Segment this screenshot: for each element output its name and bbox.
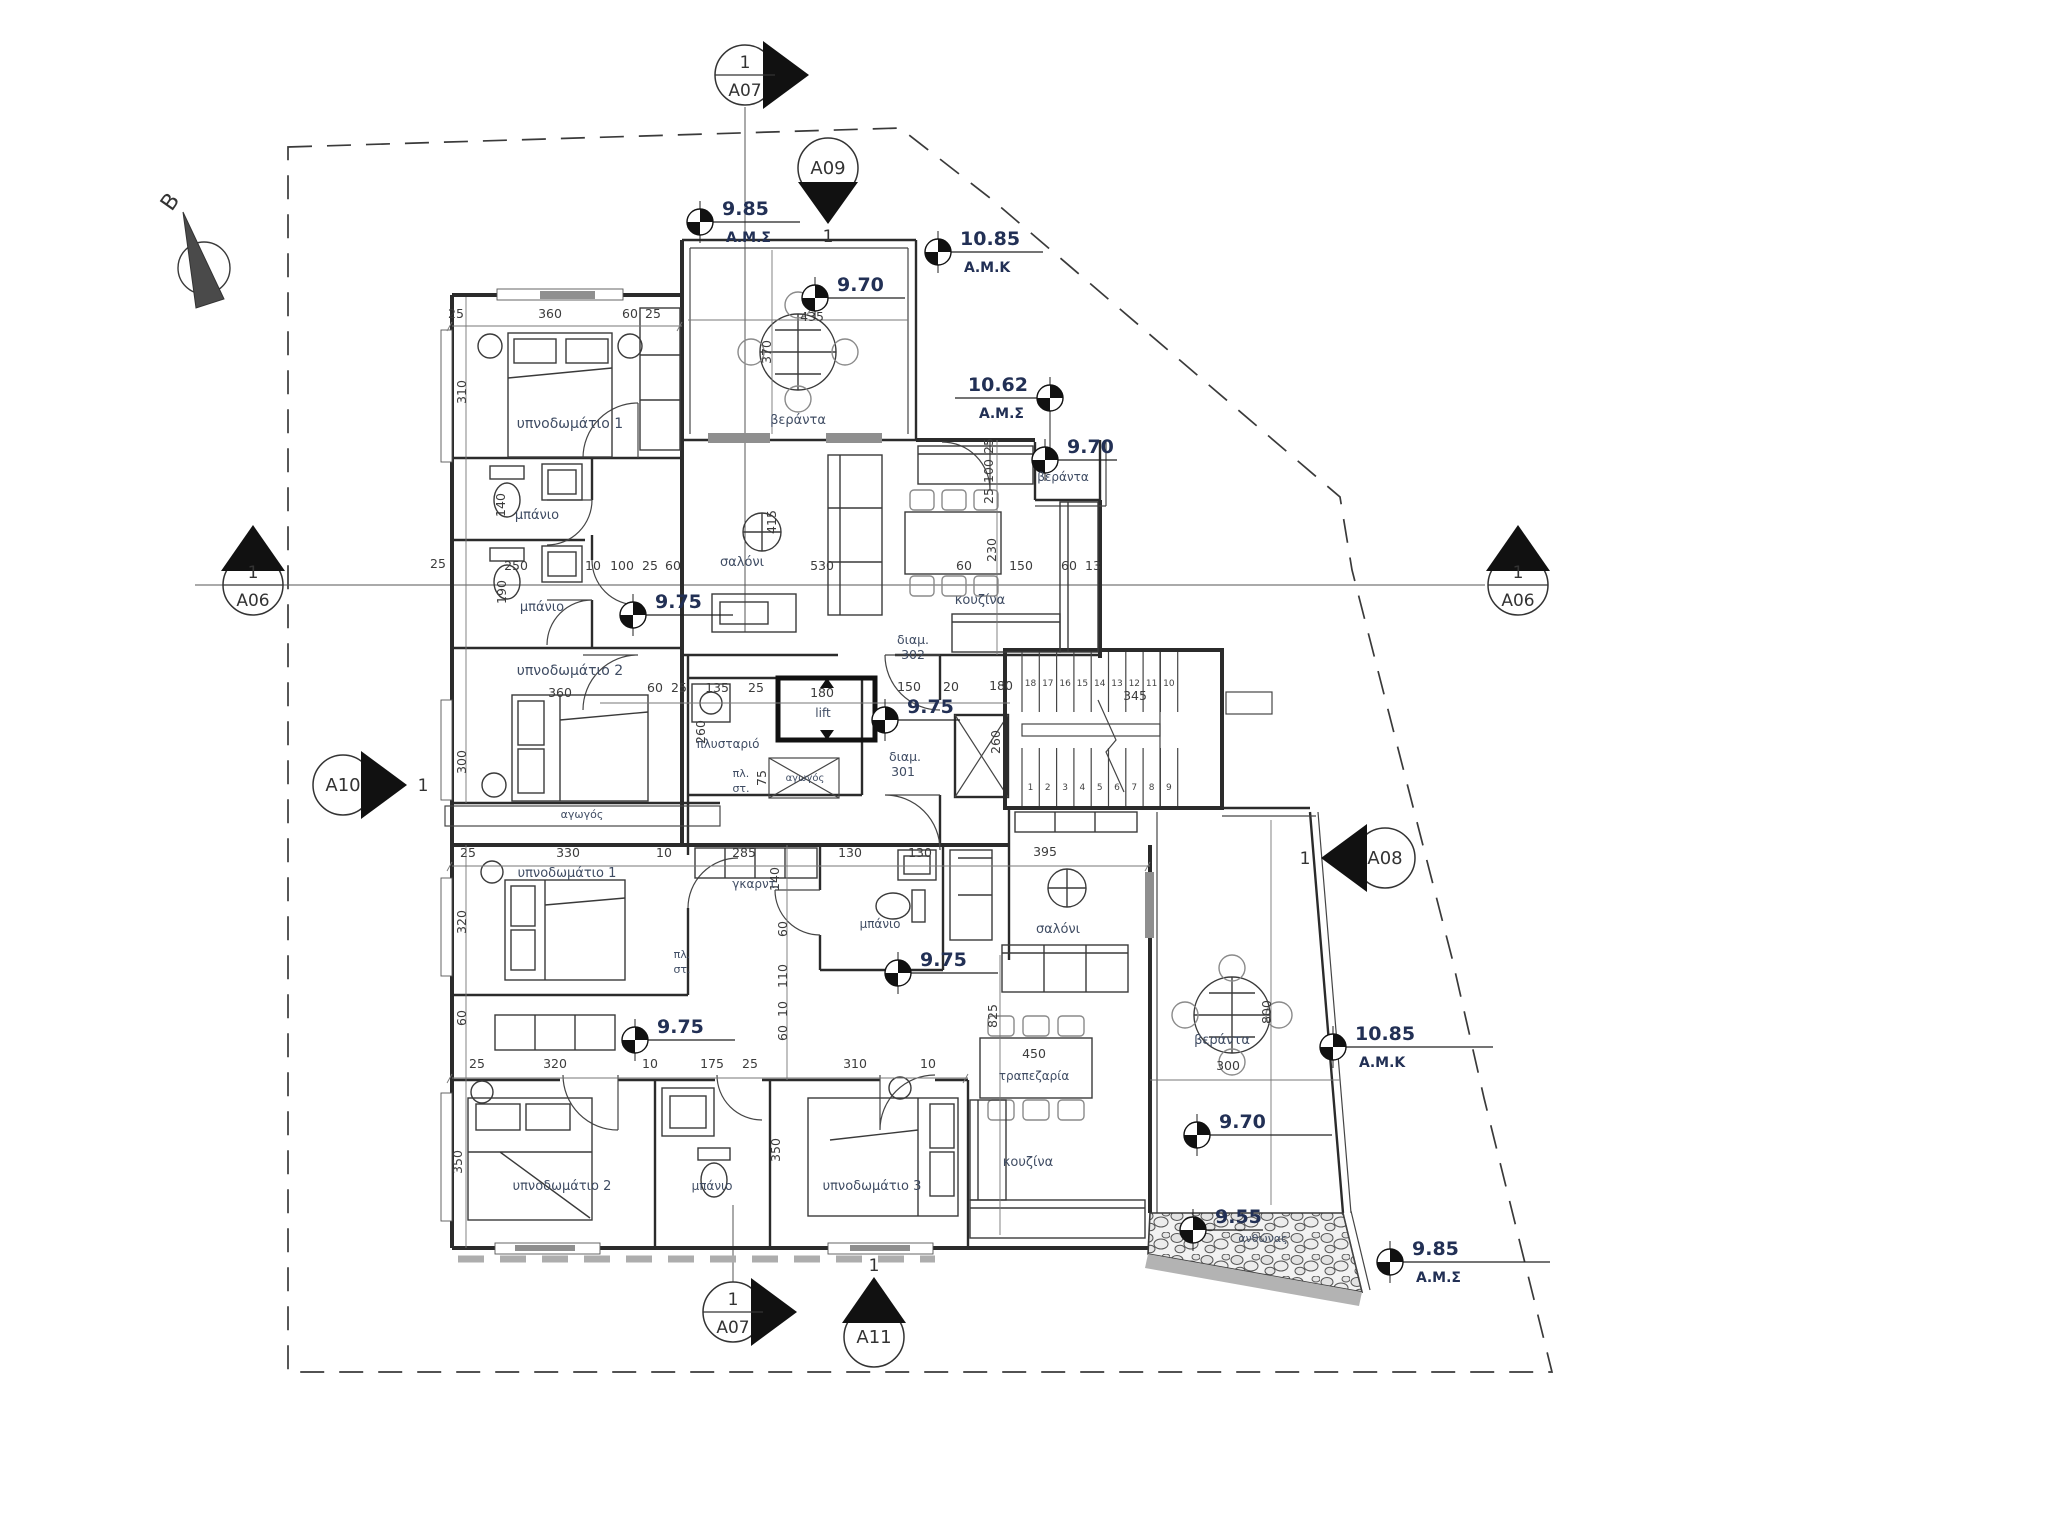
dimension-label: 25: [645, 306, 661, 321]
dimension-label: 350: [450, 1150, 465, 1174]
dimension-label: 360: [538, 306, 562, 321]
section-marker-A10: A101: [313, 751, 428, 819]
room-label: σαλόνι: [720, 555, 764, 570]
dimension-label: 25: [430, 556, 446, 571]
svg-text:10.85: 10.85: [960, 228, 1020, 250]
svg-text:9.70: 9.70: [1067, 436, 1114, 458]
section-arrow-icon: [842, 1277, 906, 1323]
stair-step-number: 1: [1028, 783, 1034, 793]
dimension-label: 175: [700, 1056, 724, 1071]
dimension-label: 25: [981, 488, 996, 504]
stair-step-number: 11: [1146, 679, 1157, 689]
room-label: βεράντα: [1194, 1033, 1250, 1048]
dimension-label: 310: [454, 380, 469, 404]
dimension-label: 180: [989, 678, 1013, 693]
room-label: 302: [901, 647, 925, 662]
dimension-label: 285: [732, 845, 756, 860]
room-label: τραπεζαρία: [999, 1069, 1070, 1083]
room-label: μπάνιο: [520, 600, 564, 615]
north-arrow: B: [156, 189, 230, 308]
dimension-label: 130: [838, 845, 862, 860]
svg-text:9.75: 9.75: [920, 949, 967, 971]
svg-text:A07: A07: [716, 1318, 749, 1338]
dimension-label: 60: [956, 558, 972, 573]
stairs: 181716151413121110123456789: [1022, 652, 1178, 806]
dimension-label: 60: [775, 921, 790, 937]
room-label: πλ.: [674, 948, 691, 961]
section-marker-A09: A091: [798, 138, 858, 247]
room-label: διαμ.: [889, 749, 921, 764]
room-label: πλυσταριό: [696, 737, 759, 751]
room-label: αγωγός: [786, 772, 825, 784]
svg-text:9.85: 9.85: [722, 198, 769, 220]
svg-text:1: 1: [740, 53, 751, 73]
dimension-label: 25: [460, 845, 476, 860]
svg-text:1: 1: [823, 227, 834, 247]
svg-text:A10: A10: [325, 775, 360, 796]
dimension-label: 320: [543, 1056, 567, 1071]
dimension-label: 75: [754, 770, 769, 786]
room-label: υπνοδωμάτιο 1: [517, 416, 623, 432]
dimension-label: 60: [775, 1025, 790, 1041]
room-label: ανθώνας: [1238, 1232, 1287, 1245]
dimension-label: 10: [775, 1001, 790, 1017]
section-marker-A07: 1A07: [715, 41, 809, 109]
dimension-label: 25: [448, 306, 464, 321]
stair-step-number: 8: [1149, 783, 1155, 793]
room-label: υπνοδωμάτιο 1: [518, 866, 617, 881]
svg-text:B: B: [156, 189, 185, 216]
stair-step-number: 17: [1042, 679, 1053, 689]
svg-text:A09: A09: [810, 158, 845, 179]
svg-text:A06: A06: [236, 591, 269, 611]
svg-text:A07: A07: [728, 81, 761, 101]
dimension-label: 135: [705, 680, 729, 695]
dimension-label: 360: [548, 685, 572, 700]
stair-step-number: 7: [1131, 783, 1137, 793]
dimension-label: 300: [1216, 1058, 1240, 1073]
svg-text:9.70: 9.70: [837, 274, 884, 296]
room-label: κουζίνα: [1003, 1155, 1053, 1170]
dimension-label: 150: [1009, 558, 1033, 573]
dimension-label: 260: [988, 730, 1003, 754]
svg-text:1: 1: [418, 776, 429, 796]
dimension-label: 190: [494, 580, 509, 604]
svg-text:9.55: 9.55: [1215, 1206, 1262, 1228]
room-label: στ.: [732, 782, 749, 795]
dimension-label: 300: [454, 750, 469, 774]
dimension-label: 350: [768, 1138, 783, 1162]
svg-text:1: 1: [1300, 849, 1311, 869]
room-label: στ.: [673, 963, 690, 976]
level-marker: 9.70: [1184, 1111, 1332, 1156]
section-marker-A11: A111: [842, 1256, 906, 1367]
dimension-label: 150: [897, 679, 921, 694]
dimension-label: 100: [981, 459, 996, 483]
dimension-label: 250: [504, 558, 528, 573]
level-marker: 9.75: [872, 696, 960, 741]
dimension-label: 10: [920, 1056, 936, 1071]
room-label: διαμ.: [897, 632, 929, 647]
dimension-label: 25: [671, 680, 687, 695]
dimension-label: 25: [469, 1056, 485, 1071]
room-label: σαλόνι: [1036, 922, 1080, 937]
dimension-label: 60: [622, 306, 638, 321]
section-arrow-icon: [798, 182, 858, 224]
dimension-label: 800: [1259, 1000, 1274, 1024]
svg-text:9.75: 9.75: [655, 591, 702, 613]
room-label: κουζίνα: [955, 593, 1005, 608]
room-label: μπάνιο: [515, 508, 559, 523]
svg-text:9.75: 9.75: [657, 1016, 704, 1038]
svg-text:9.85: 9.85: [1412, 1238, 1459, 1260]
section-marker-A06: 1A06: [1486, 525, 1550, 615]
floor-plan-svg: 181716151413121110123456789 1A07A0911A06…: [0, 0, 2048, 1536]
room-label: lift: [815, 706, 831, 720]
dimension-label: 370: [759, 340, 774, 364]
stair-step-number: 2: [1045, 783, 1051, 793]
dimension-label: 140: [493, 493, 508, 517]
room-label: πλ.: [733, 767, 750, 780]
level-marker: 9.75: [885, 949, 998, 994]
svg-text:1: 1: [869, 1256, 880, 1276]
dimension-label: 110: [775, 964, 790, 988]
section-arrow-icon: [361, 751, 407, 819]
section-marker-A06: 1A06: [221, 525, 285, 615]
dimension-label: 435: [800, 309, 824, 324]
svg-text:Α.Μ.Σ: Α.Μ.Σ: [979, 406, 1024, 422]
dimension-label: 130: [908, 845, 932, 860]
svg-text:9.75: 9.75: [907, 696, 954, 718]
level-marker: 9.75: [620, 591, 733, 636]
svg-text:9.70: 9.70: [1219, 1111, 1266, 1133]
stair-step-number: 10: [1163, 679, 1175, 689]
room-labels: υπνοδωμάτιο 1μπάνιομπάνιουπνοδωμάτιο 2σα…: [513, 413, 1288, 1245]
dimension-label: 10: [656, 845, 672, 860]
dimension-label: 230: [984, 538, 999, 562]
floor-plan-page: 181716151413121110123456789 1A07A0911A06…: [0, 0, 2048, 1536]
dimension-label: 60: [1061, 558, 1077, 573]
stair-step-number: 3: [1062, 783, 1068, 793]
dimension-label: 13: [1085, 558, 1101, 573]
stair-step-number: 13: [1111, 679, 1122, 689]
section-marker-A07: 1A07: [703, 1278, 797, 1346]
level-marker: 9.75: [622, 1016, 735, 1061]
svg-text:Α.Μ.Σ: Α.Μ.Σ: [726, 230, 771, 246]
svg-text:10.62: 10.62: [968, 374, 1028, 396]
svg-text:10.85: 10.85: [1355, 1023, 1415, 1045]
svg-text:1: 1: [728, 1290, 739, 1310]
dimension-label: 25: [642, 558, 658, 573]
svg-text:Α.Μ.Κ: Α.Μ.Κ: [964, 260, 1011, 276]
dimension-label: 180: [810, 685, 834, 700]
dimension-label: 60: [665, 558, 681, 573]
dimension-label: 25: [742, 1056, 758, 1071]
dimension-label: 310: [843, 1056, 867, 1071]
dimension-label: 530: [810, 558, 834, 573]
dimension-label: 100: [610, 558, 634, 573]
room-label: βεράντα: [770, 413, 826, 428]
dimension-label: 60: [647, 680, 663, 695]
level-marker: 10.85Α.Μ.Κ: [1320, 1023, 1493, 1071]
stair-step-number: 16: [1059, 679, 1071, 689]
svg-text:A08: A08: [1367, 848, 1402, 869]
svg-text:1: 1: [1513, 563, 1524, 583]
svg-text:A06: A06: [1501, 591, 1534, 611]
section-arrow-icon: [1321, 824, 1367, 892]
room-label: υπνοδωμάτιο 2: [517, 663, 623, 679]
stair-step-number: 9: [1166, 783, 1172, 793]
room-label: γκαρντ.: [732, 877, 779, 891]
dimension-label: 10: [585, 558, 601, 573]
room-label: βεράντα: [1037, 470, 1089, 484]
stair-step-number: 4: [1080, 783, 1086, 793]
level-marker: 10.85Α.Μ.Κ: [925, 228, 1043, 276]
room-label: αγωγός: [561, 808, 604, 821]
svg-text:A11: A11: [856, 1327, 891, 1348]
svg-text:Α.Μ.Σ: Α.Μ.Σ: [1416, 1270, 1461, 1286]
dimension-label: 825: [985, 1004, 1000, 1028]
level-marker: 9.85Α.Μ.Σ: [1377, 1238, 1550, 1286]
dimension-label: 10: [642, 1056, 658, 1071]
dimension-label: 345: [1123, 688, 1147, 703]
room-label: υπνοδωμάτιο 2: [513, 1179, 612, 1194]
dimension-label: 25: [748, 680, 764, 695]
stair-step-number: 5: [1097, 783, 1103, 793]
svg-text:Α.Μ.Κ: Α.Μ.Κ: [1359, 1055, 1406, 1071]
room-label: υπνοδωμάτιο 3: [823, 1179, 922, 1194]
room-label: μπάνιο: [692, 1179, 733, 1193]
room-label: μπάνιο: [860, 917, 901, 931]
dimension-label: 320: [454, 910, 469, 934]
room-label: 301: [891, 764, 915, 779]
svg-text:1: 1: [248, 563, 259, 583]
stair-step-number: 18: [1025, 679, 1037, 689]
dimension-label: 60: [454, 1010, 469, 1026]
dimension-label: 450: [1022, 1046, 1046, 1061]
dimension-label: 20: [943, 679, 959, 694]
dimension-label: 25: [981, 438, 996, 454]
dimension-label: 330: [556, 845, 580, 860]
stair-step-number: 14: [1094, 679, 1106, 689]
stair-step-number: 6: [1114, 783, 1120, 793]
stair-step-number: 15: [1077, 679, 1088, 689]
dimension-label: 415: [764, 510, 779, 534]
dimension-label: 395: [1033, 844, 1057, 859]
